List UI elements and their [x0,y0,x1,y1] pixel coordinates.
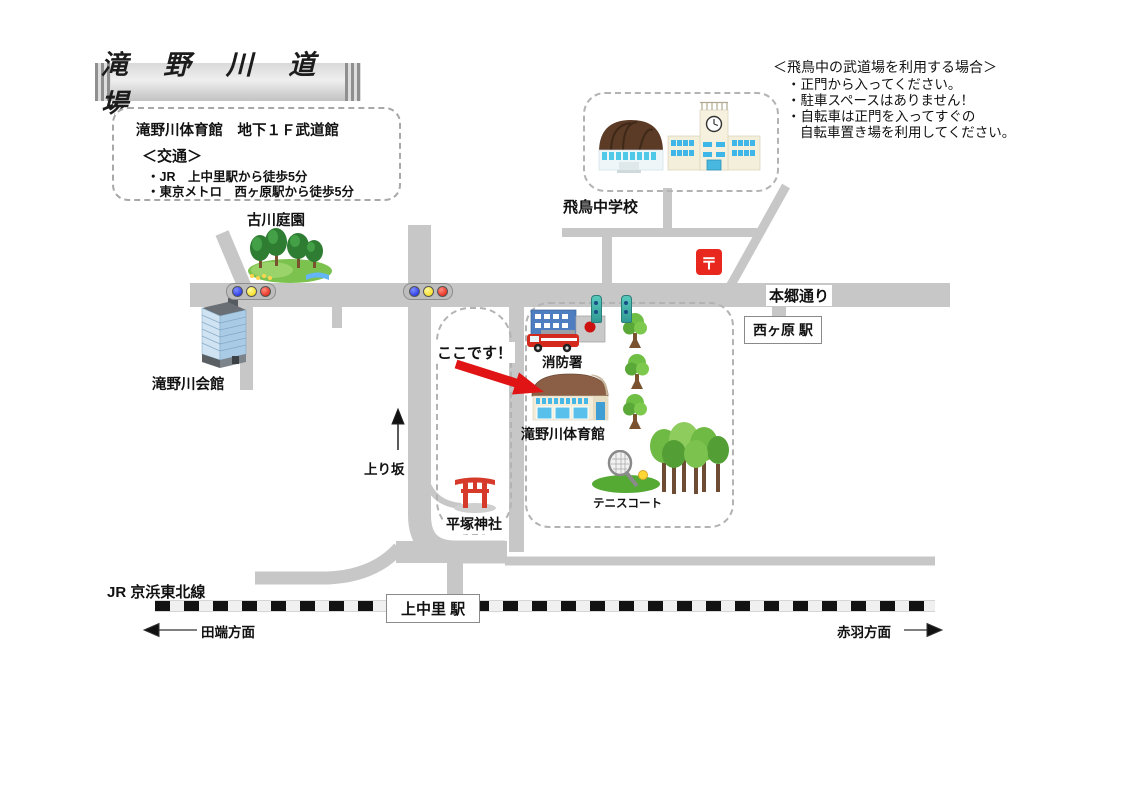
notice-item: ・自転車は正門を入ってすぐの [773,109,1073,125]
furukawa-garden-icon [242,226,332,284]
pedestrian-signal-icon [621,295,632,323]
access-map: 滝 野 川 道 場 滝野川体育館 地下１Ｆ武道館 ＜交通＞ ・JR 上中里駅から… [0,0,1122,793]
label-koko-desu: ここです！ [434,342,515,363]
label-hongo-street: 本郷通り [766,285,832,306]
signal-yellow [423,286,434,297]
torii-icon [452,474,498,514]
label-hiratsuka-shrine: 平塚神社 [443,514,505,534]
label-uphill: 上り坂 [364,458,405,478]
label-asuka-school: 飛鳥中学校 [563,196,638,217]
takinogawa-gym-icon [530,370,610,422]
access-heading: ＜交通＞ [142,145,202,166]
notice-heading: ＜飛鳥中の武道場を利用する場合＞ [773,61,1073,77]
signal-blue [409,286,420,297]
label-tennis-court: テニスコート [593,495,662,511]
budojo-notice: ＜飛鳥中の武道場を利用する場合＞ ・正門から入ってください。 ・駐車スペースはあ… [773,61,1073,141]
label-furukawa-garden: 古川庭園 [247,209,305,230]
tree-icon [624,352,650,392]
takinogawa-kaikan-icon [188,298,260,372]
label-takinogawa-kaikan: 滝野川会館 [152,373,225,394]
signal-red [437,286,448,297]
venue-name: 滝野川体育館 地下１Ｆ武道館 [136,119,339,140]
road-ne-diagonal [727,186,786,292]
tennis-court-icon [590,450,666,494]
access-item-metro: ・東京メトロ 西ヶ原駅から徒歩5分 [147,181,354,200]
road-bottom-curve [328,548,399,578]
post-office-mark: 〒 [701,250,717,274]
label-fire-station: 消防署 [542,351,583,371]
school-gym-icon [593,114,669,178]
title-banner: 滝 野 川 道 場 [95,63,361,101]
access-info-box: 滝野川体育館 地下１Ｆ武道館 ＜交通＞ ・JR 上中里駅から徒歩5分 ・東京メト… [112,107,401,201]
label-akabane-direction: 赤羽方面 [837,621,891,641]
signal-yellow [246,286,257,297]
traffic-light-icon [226,283,276,300]
uphill-arrow-icon [392,409,404,450]
tree-icon [622,392,648,432]
notice-item: 自転車置き場を利用してください。 [773,125,1073,141]
kaminakazato-station-box: 上中里 駅 [386,594,480,623]
label-tabata-direction: 田端方面 [201,621,255,641]
traffic-light-icon [403,283,453,300]
nishigahara-station-box: 西ヶ原 駅 [744,316,822,344]
signal-blue [232,286,243,297]
notice-item: ・駐車スペースはありません！ [773,93,1073,109]
label-jr-line: JR 京浜東北線 [107,581,205,602]
school-building-icon [666,100,762,178]
akabane-arrow-icon [904,624,942,637]
tabata-arrow-icon [144,624,197,637]
railway-track [155,600,935,612]
post-office-icon: 〒 [696,249,722,275]
notice-item: ・正門から入ってください。 [773,77,1073,93]
pedestrian-signal-icon [591,295,602,323]
label-takinogawa-gym: 滝野川体育館 [521,424,605,444]
signal-red [260,286,271,297]
